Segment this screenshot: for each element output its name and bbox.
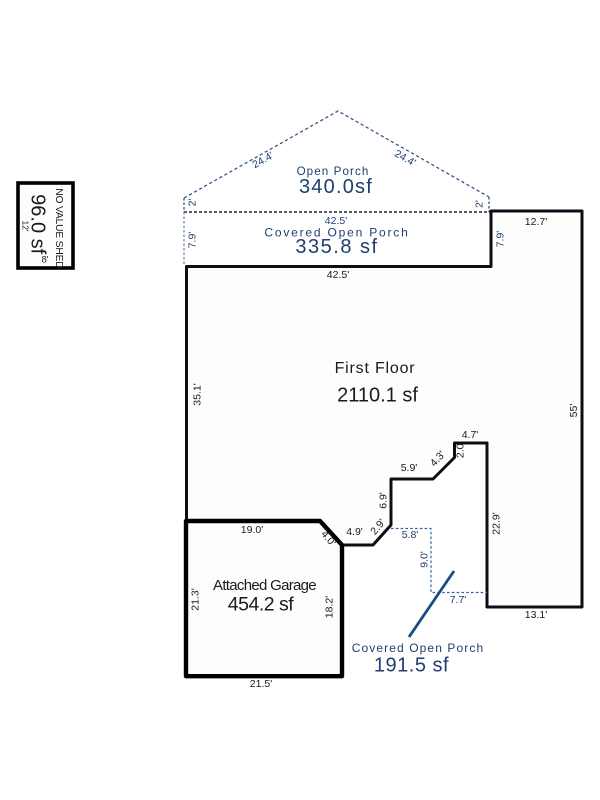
svg-text:335.8 sf: 335.8 sf [295, 236, 378, 258]
svg-text:7.9': 7.9' [187, 232, 199, 249]
svg-text:7.9': 7.9' [495, 231, 507, 248]
svg-text:21.5': 21.5' [250, 678, 272, 690]
svg-text:8': 8' [41, 255, 48, 266]
svg-text:35.1': 35.1' [191, 383, 203, 405]
svg-text:454.2 sf: 454.2 sf [228, 594, 294, 616]
svg-text:22.9': 22.9' [491, 512, 503, 534]
svg-text:First Floor: First Floor [335, 360, 416, 377]
svg-text:2': 2' [473, 200, 485, 208]
svg-text:NO VALUE SHED: NO VALUE SHED [53, 188, 64, 268]
svg-text:4.7': 4.7' [462, 429, 479, 441]
svg-text:2110.1 sf: 2110.1 sf [337, 385, 418, 407]
svg-text:12.7': 12.7' [525, 216, 547, 228]
svg-text:4.9': 4.9' [346, 526, 363, 538]
svg-text:2.0: 2.0 [454, 443, 466, 458]
svg-text:Attached Garage: Attached Garage [213, 577, 316, 594]
svg-text:12': 12' [21, 220, 31, 231]
svg-text:340.0sf: 340.0sf [299, 176, 373, 198]
svg-text:13.1': 13.1' [525, 609, 547, 621]
svg-text:42.5': 42.5' [327, 269, 349, 281]
svg-text:5.9': 5.9' [401, 462, 418, 474]
svg-text:7.7': 7.7' [450, 594, 467, 606]
svg-text:2': 2' [186, 199, 198, 207]
svg-text:9.0': 9.0' [418, 551, 430, 568]
svg-text:18.2': 18.2' [323, 596, 335, 618]
svg-text:19.0': 19.0' [241, 524, 263, 536]
svg-text:6.9': 6.9' [378, 492, 390, 509]
svg-text:5.8': 5.8' [402, 529, 419, 541]
svg-text:191.5 sf: 191.5 sf [374, 655, 449, 677]
svg-text:21.3': 21.3' [189, 588, 201, 610]
svg-text:55': 55' [568, 404, 580, 418]
svg-text:Covered Open Porch: Covered Open Porch [352, 641, 485, 655]
